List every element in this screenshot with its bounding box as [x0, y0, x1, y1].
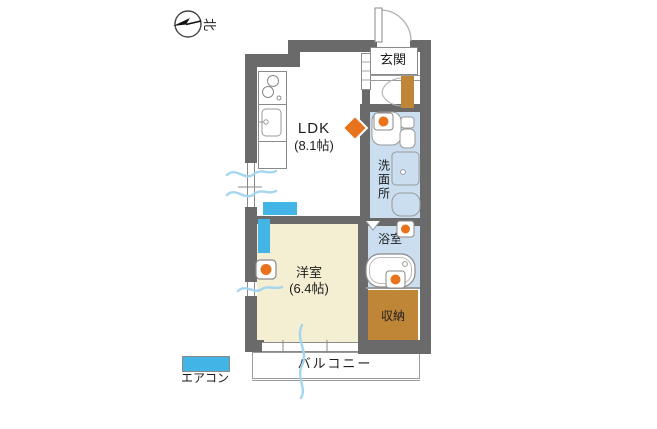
aircon-western-room	[258, 219, 270, 253]
floor-plan: エアコン 玄関 LDK (8.1帖) 洗面所 浴室 洋室 (6.4帖) 収納 バ…	[0, 0, 657, 429]
aircon-ldk	[263, 202, 297, 215]
balcony-label: バルコニー	[252, 352, 418, 377]
wall-top-main	[293, 40, 377, 52]
window-ldk-left	[247, 163, 255, 207]
stove-unit	[258, 71, 287, 106]
compass-north-label: 北	[202, 18, 217, 31]
storage-label: 収納	[368, 309, 418, 324]
compass-icon: 北	[173, 11, 217, 37]
wall-washroom-bathroom	[358, 218, 420, 226]
western-room-size-label: (6.4帖)	[289, 281, 329, 297]
western-room-label: 洋室	[296, 265, 322, 281]
entrance-door-icon	[375, 8, 411, 42]
window-western-room-left	[247, 282, 255, 296]
washroom-label: 洗面所	[371, 148, 395, 212]
wall-western-room-right	[358, 226, 368, 340]
bathroom-label: 浴室	[368, 232, 412, 247]
ldk-size-label: (8.1帖)	[294, 138, 334, 154]
genkan-label: 玄関	[370, 47, 416, 73]
wall-left-upper	[245, 60, 257, 163]
legend-aircon-label: エアコン	[170, 370, 240, 386]
ldk-label: LDK	[298, 120, 330, 139]
wall-washroom-left	[360, 112, 370, 218]
balcony-rail-line	[252, 380, 420, 381]
window-western-room-bottom	[262, 342, 358, 352]
wall-right	[420, 40, 431, 354]
wall-bathroom-storage-line	[366, 287, 420, 289]
shoe-cabinet	[401, 76, 414, 108]
wall-left-lower	[245, 296, 257, 344]
